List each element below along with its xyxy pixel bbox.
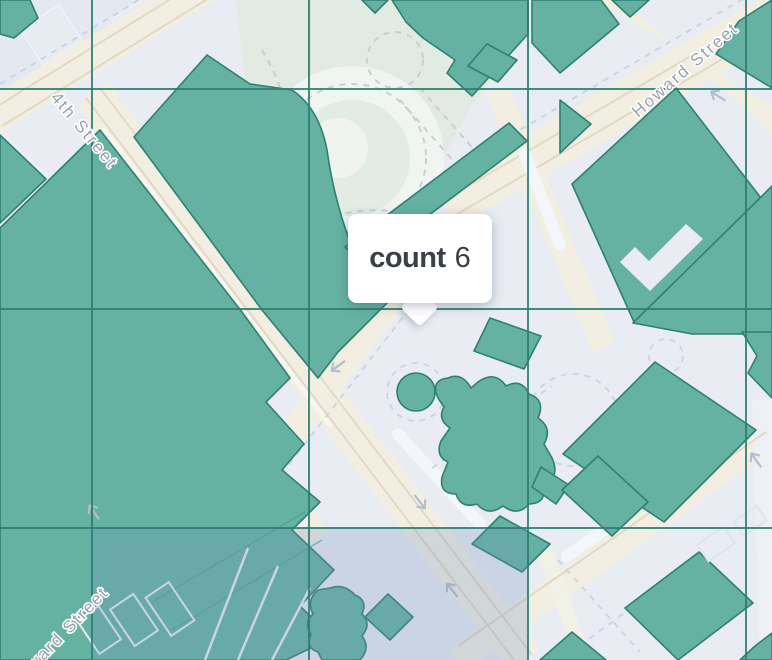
building-round: [397, 373, 435, 411]
tooltip-value: 6: [455, 242, 471, 275]
count-tooltip: count 6: [348, 214, 492, 303]
basemap: 4th Street Howard Street Howard Street: [0, 0, 772, 660]
grid-cell[interactable]: [92, 528, 309, 660]
grid-cell[interactable]: [309, 528, 528, 660]
map-canvas[interactable]: 4th Street Howard Street Howard Street c…: [0, 0, 772, 660]
tooltip-label: count: [369, 242, 445, 275]
